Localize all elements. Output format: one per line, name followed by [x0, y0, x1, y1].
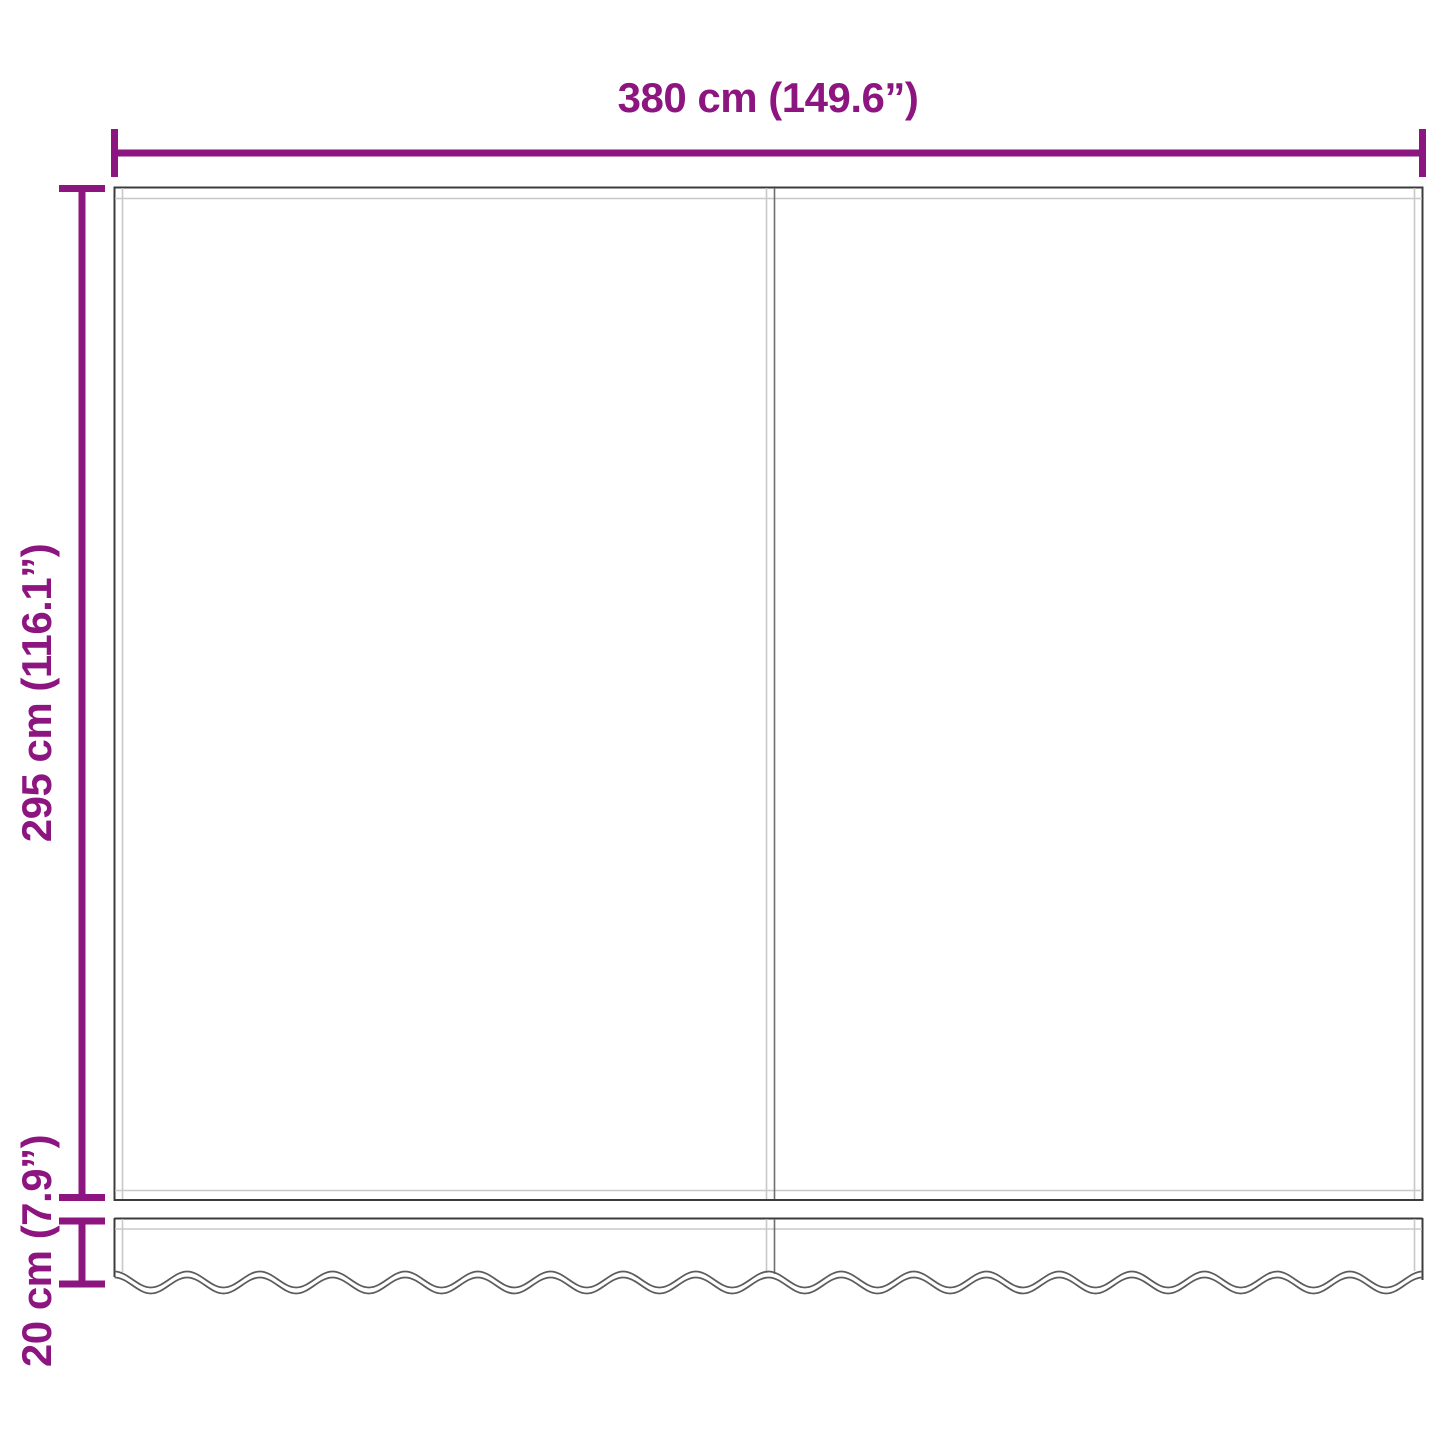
fabric-panel-outline — [115, 188, 1423, 1201]
fabric-panel — [115, 188, 1423, 1201]
width-dimension: 380 cm (149.6”) — [115, 74, 1423, 177]
valance-strip — [115, 1218, 1423, 1294]
valance-dimension: 20 cm (7.9”) — [13, 1135, 105, 1367]
width-dimension-label: 380 cm (149.6”) — [618, 74, 919, 121]
awning-fabric-dimension-diagram: 380 cm (149.6”) 295 cm (116.1”) 20 cm (7… — [0, 0, 1445, 1445]
valance-dimension-label: 20 cm (7.9”) — [13, 1135, 60, 1367]
height-dimension: 295 cm (116.1”) — [13, 189, 105, 1198]
valance-wave-upper — [115, 1272, 1423, 1288]
diagram-svg: 380 cm (149.6”) 295 cm (116.1”) 20 cm (7… — [0, 0, 1445, 1445]
valance-wave-lower — [115, 1278, 1423, 1294]
height-dimension-label: 295 cm (116.1”) — [13, 544, 60, 842]
